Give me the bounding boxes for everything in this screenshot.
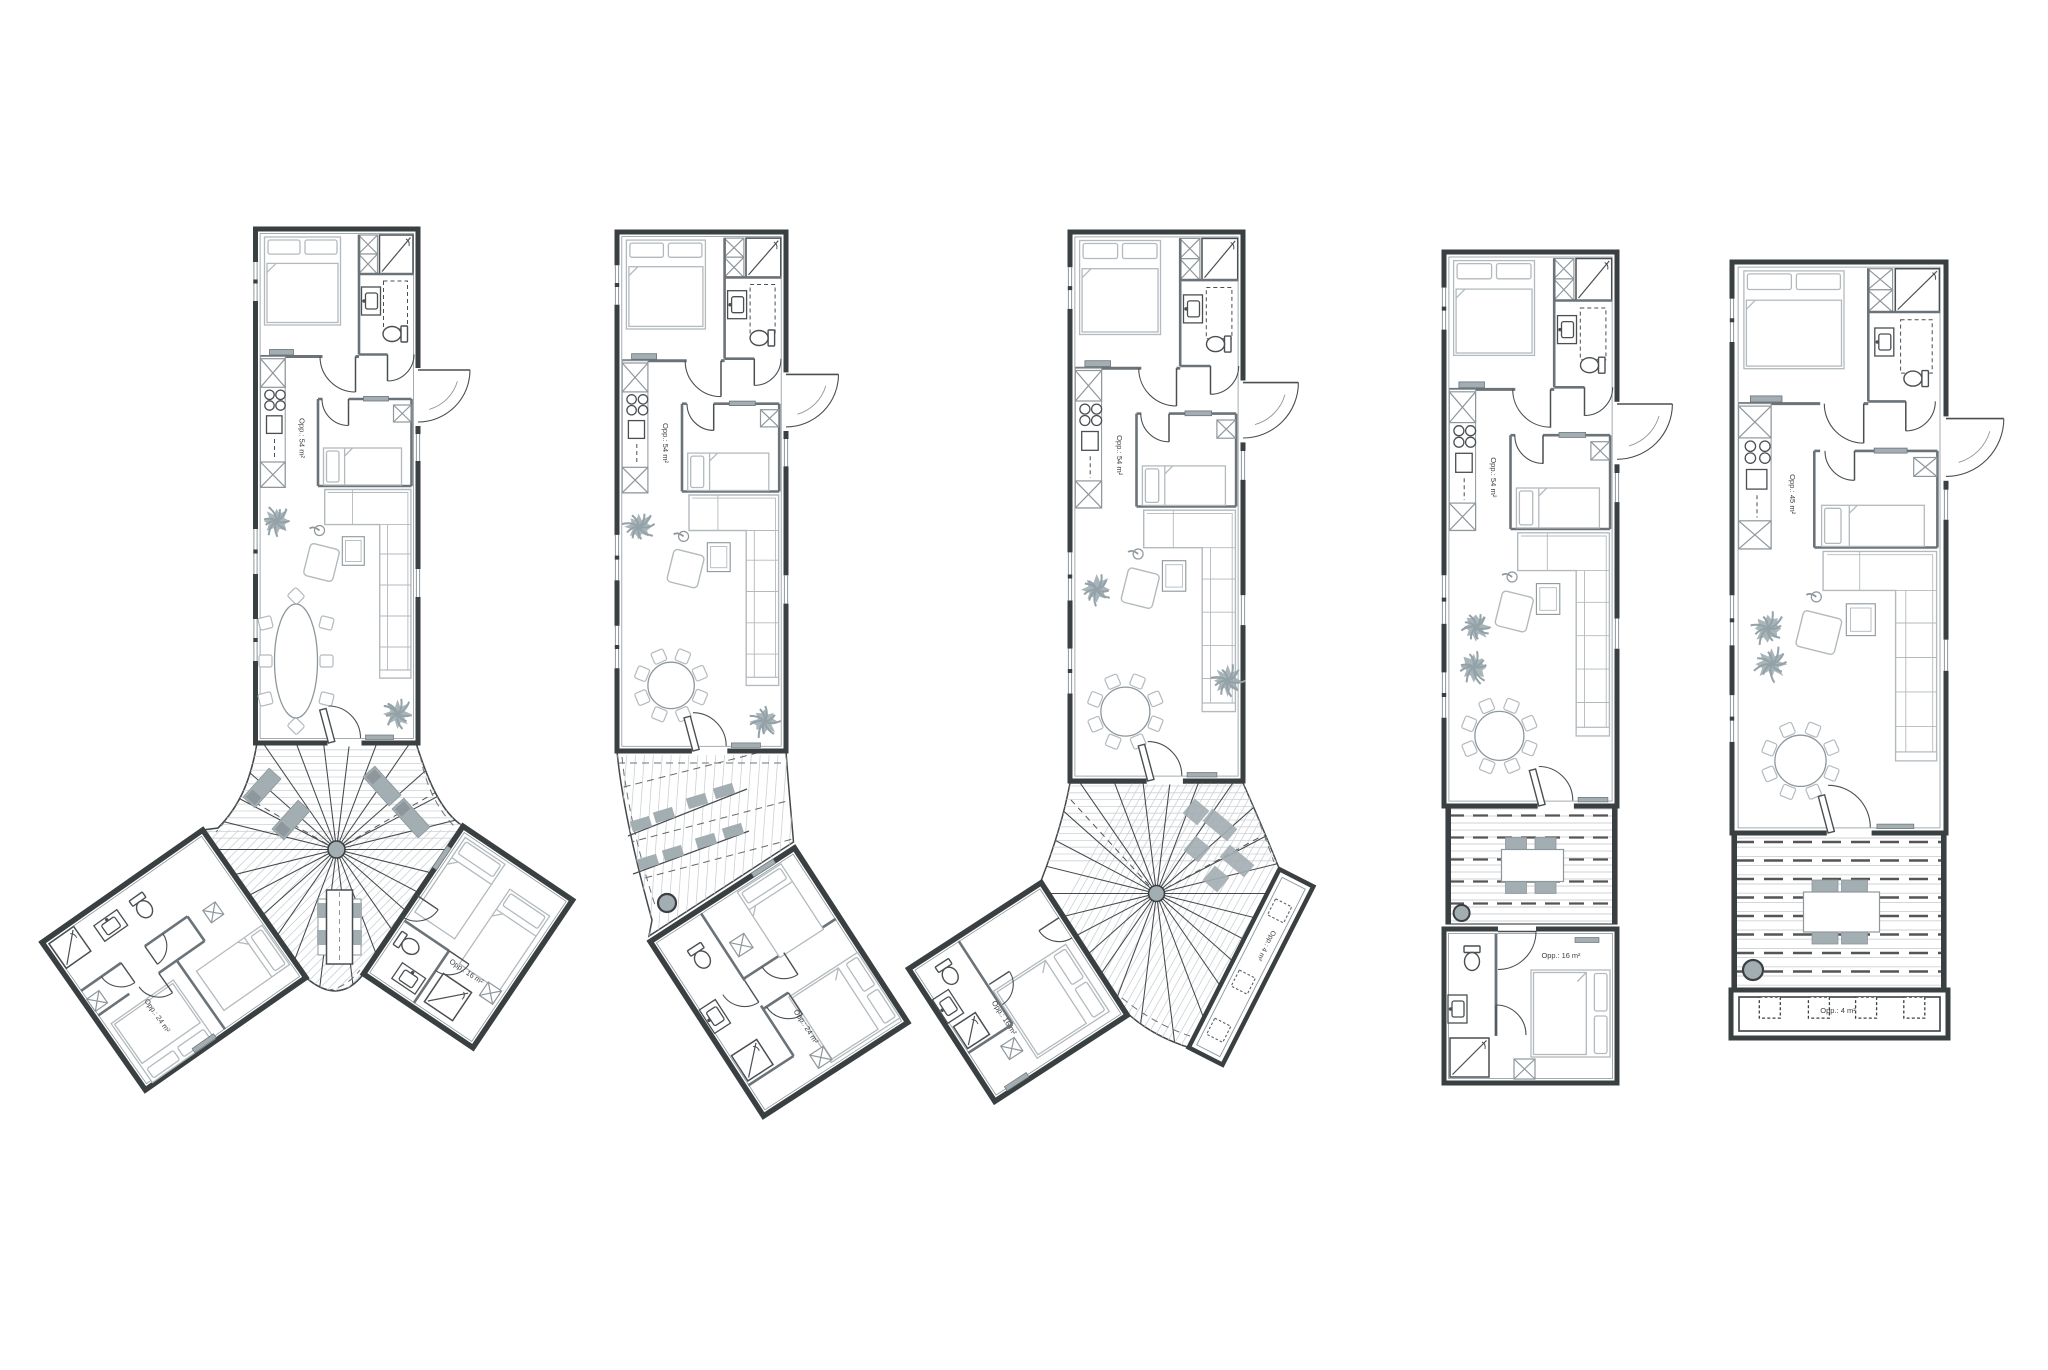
svg-text:Opp.: 16 m²: Opp.: 16 m²	[1541, 951, 1581, 960]
svg-text:Opp.: 54 m²: Opp.: 54 m²	[1115, 435, 1124, 476]
svg-text:Opp.: 4 m²: Opp.: 4 m²	[1820, 1006, 1856, 1015]
svg-text:Opp.: 54 m²: Opp.: 54 m²	[1489, 457, 1498, 498]
svg-text:Opp.: 45 m²: Opp.: 45 m²	[1788, 474, 1797, 515]
svg-text:Opp.: 54 m²: Opp.: 54 m²	[298, 418, 307, 459]
svg-text:Opp.: 54 m²: Opp.: 54 m²	[661, 423, 670, 464]
